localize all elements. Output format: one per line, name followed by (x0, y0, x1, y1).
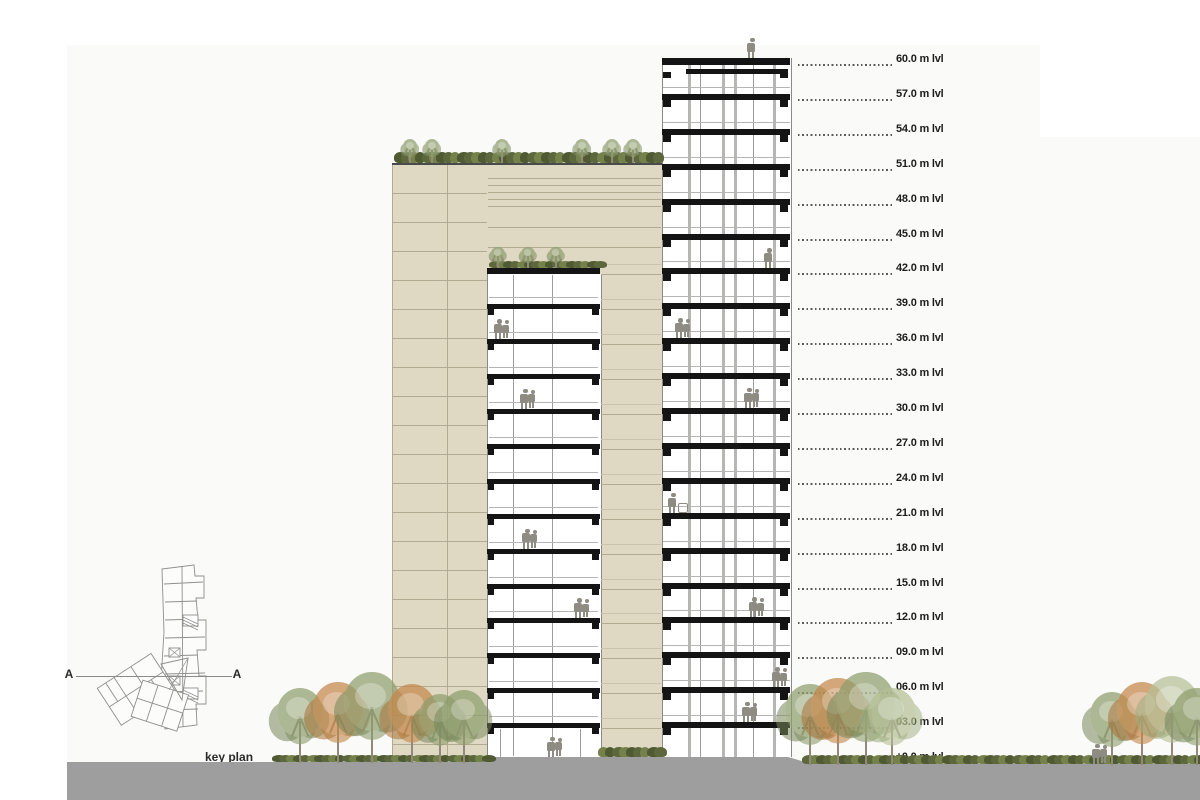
person-head (505, 320, 509, 324)
level-leader-line (798, 64, 892, 66)
tower-floor-slab (662, 583, 790, 589)
level-label: 54.0 m lvl (896, 123, 976, 135)
tower-slab-stub (780, 449, 788, 456)
podium-panel-joint-vertical (447, 165, 448, 757)
level-leader-line (798, 622, 892, 624)
person-head (533, 530, 537, 534)
atrium-slab-stub (592, 658, 599, 664)
tower-slab-stub (663, 135, 671, 142)
atrium-transom (489, 402, 598, 403)
atrium-slab-stub (592, 519, 599, 525)
tower-slab-stub (663, 72, 671, 78)
person-head (550, 737, 554, 741)
atrium-slab-stub (592, 693, 599, 699)
section-drawing-sheet: A A key plan 60.0 m lvl57.0 m lvl54.0 m … (0, 0, 1200, 800)
tower-slab-stub (780, 379, 788, 386)
tower-transom (663, 576, 790, 577)
person-leg (1097, 757, 1099, 764)
atrium-floor-slab (487, 304, 600, 309)
tower-slab-stub (780, 623, 788, 630)
podium-band-line (488, 199, 661, 200)
podium-band-line (488, 178, 661, 179)
person-leg (525, 402, 527, 409)
tower-slab-stub (663, 309, 671, 316)
atrium-slab-stub (488, 414, 494, 420)
roof-tree-canopy-highlight (608, 142, 616, 149)
person-leg (777, 680, 779, 687)
level-label: 15.0 m lvl (896, 577, 976, 589)
podium-right-wall-joint-minor (601, 369, 661, 370)
atrium-transom (489, 716, 598, 717)
level-leader-line (798, 239, 892, 241)
level-label: 33.0 m lvl (896, 367, 976, 379)
person-leg (506, 332, 508, 338)
atrium-slab-stub (592, 449, 599, 455)
atrium-roof-tree-canopy-highlight (552, 249, 559, 255)
person-head (1095, 744, 1099, 748)
podium-right-wall-joint (601, 658, 661, 659)
person-leg (1104, 757, 1106, 763)
podium-right-wall-joint (601, 414, 661, 415)
person-leg (548, 750, 550, 757)
person-head (671, 493, 675, 497)
person-leg (495, 332, 497, 339)
street-tree-canopy-highlight (878, 697, 904, 720)
atrium-slab-stub (592, 554, 599, 560)
level-label: 57.0 m lvl (896, 88, 976, 100)
level-leader-line (798, 448, 892, 450)
podium-right-wall-joint-minor (601, 683, 661, 684)
tower-floor-slab (662, 234, 790, 240)
tower-slab-stub (780, 309, 788, 316)
atrium-floor-slab (487, 688, 600, 693)
person-leg (745, 401, 747, 408)
level-leader-line (798, 413, 892, 415)
podium-right-wall-joint (601, 274, 661, 275)
tower-slab-stub (780, 589, 788, 596)
atrium-slab-stub (488, 309, 494, 315)
atrium-slab-stub (488, 344, 494, 350)
tower-floor-slab (662, 652, 790, 658)
atrium-floor-slab (487, 374, 600, 379)
podium-right-wall-joint-minor (601, 439, 661, 440)
person-leg (586, 611, 588, 617)
atrium-roof-tree-canopy-highlight (524, 249, 531, 255)
atrium-slab-stub (592, 309, 599, 315)
atrium-slab-stub (592, 484, 599, 490)
atrium-slab-stub (488, 554, 494, 560)
tower-slab-stub (780, 658, 788, 665)
person-leg (750, 610, 752, 617)
atrium-floor-slab (487, 409, 600, 414)
tower-slab-stub (780, 728, 788, 735)
person-leg (583, 611, 585, 617)
podium-right-wall-joint-minor (601, 718, 661, 719)
person-leg (579, 611, 581, 618)
podium-right-wall-joint-minor (601, 648, 661, 649)
person-leg (761, 610, 763, 616)
tower-floor-slab (662, 303, 790, 309)
tower-transom (663, 87, 790, 88)
tower-slab-stub (663, 623, 671, 630)
tower-transom (663, 471, 790, 472)
podium-right-wall-joint-minor (601, 579, 661, 580)
atrium-floor-slab (487, 584, 600, 589)
person-leg (684, 331, 686, 337)
person-leg (765, 261, 767, 268)
tower-roof-beam (686, 69, 788, 74)
tower-slab-stub (780, 240, 788, 247)
podium-band-line (488, 192, 661, 193)
level-leader-line (798, 483, 892, 485)
person-leg (773, 680, 775, 687)
person-head (775, 667, 779, 671)
person-leg (499, 332, 501, 339)
podium-right-wall-joint (601, 309, 661, 310)
tower-slab-stub (663, 519, 671, 526)
podium-right-wall-joint (601, 344, 661, 345)
tower-floor-slab (662, 268, 790, 274)
person-leg (523, 541, 525, 548)
atrium-slab-stub (592, 589, 599, 595)
person-leg (747, 715, 749, 722)
level-leader-line (798, 553, 892, 555)
podium-right-wall-joint (601, 623, 661, 624)
podium-right-wall-joint (601, 589, 661, 590)
tower-slab-stub (780, 414, 788, 421)
tower-transom (663, 610, 790, 611)
atrium-transom (489, 577, 598, 578)
person-leg (521, 402, 523, 409)
person-head (767, 248, 771, 252)
tower-slab-stub (663, 693, 671, 700)
shrub-ground (654, 747, 667, 757)
level-leader-line (798, 343, 892, 345)
roof-tree-canopy-highlight (578, 142, 586, 149)
tower-transom (663, 541, 790, 542)
person-leg (749, 401, 751, 408)
tower-slab-stub (663, 449, 671, 456)
tower-floor-slab (662, 164, 790, 170)
roof-tree-canopy-highlight (498, 142, 506, 149)
tower-slab-stub (663, 589, 671, 596)
person-leg (754, 610, 756, 617)
level-label: 27.0 m lvl (896, 437, 976, 449)
atrium-entrance-mullion (580, 729, 581, 757)
tower-slab-stub (663, 205, 671, 212)
podium-band-line (488, 185, 661, 186)
tower-slab-stub (780, 135, 788, 142)
tower-slab-stub (663, 484, 671, 491)
tower-slab-stub (780, 205, 788, 212)
podium-band-line (488, 206, 661, 207)
atrium-slab-stub (488, 658, 494, 664)
atrium-entrance-mullion (500, 729, 501, 757)
tower-slab-stub (663, 554, 671, 561)
atrium-transom (489, 646, 598, 647)
tower-floor-slab (662, 199, 790, 205)
person-leg (529, 402, 531, 408)
tower-slab-stub (780, 554, 788, 561)
person-head (497, 319, 501, 323)
scene-layer: 60.0 m lvl57.0 m lvl54.0 m lvl51.0 m lvl… (0, 0, 1200, 800)
podium-right-wall-joint-minor (601, 474, 661, 475)
roof-tree-canopy-highlight (629, 142, 637, 149)
tower-slab-stub (663, 379, 671, 386)
roof-tree-canopy-highlight (428, 142, 436, 149)
street-tree-canopy-highlight (355, 683, 386, 710)
level-leader-line (798, 134, 892, 136)
person-leg (769, 261, 771, 268)
level-label: 60.0 m lvl (896, 53, 976, 65)
level-label: 30.0 m lvl (896, 402, 976, 414)
atrium-floor-slab (487, 653, 600, 658)
person-leg (680, 331, 682, 338)
person-head (760, 598, 764, 602)
person-leg (758, 610, 760, 616)
tower-floor-slab (662, 373, 790, 379)
level-label: 45.0 m lvl (896, 228, 976, 240)
tower-transom (663, 366, 790, 367)
tower-transom (663, 296, 790, 297)
person-cart (678, 503, 688, 513)
atrium-floor-slab (487, 549, 600, 554)
level-label: 36.0 m lvl (896, 332, 976, 344)
atrium-transom (489, 297, 598, 298)
tower-transom (663, 227, 790, 228)
atrium-floor-slab (487, 514, 600, 519)
street-tree-canopy-highlight (1183, 697, 1200, 720)
podium-right-wall-joint (601, 379, 661, 380)
atrium-floor-slab (487, 444, 600, 449)
podium-right-wall-joint (601, 484, 661, 485)
street-tree-canopy-highlight (286, 697, 311, 719)
shrub-ground (482, 755, 496, 762)
tower-slab-stub (780, 72, 788, 78)
tower-slab-stub (663, 728, 671, 735)
level-leader-line (798, 378, 892, 380)
roof-tree-canopy-highlight (406, 142, 414, 149)
person-leg (534, 541, 536, 547)
tower-floor-slab (662, 443, 790, 449)
tower-floor-slab (662, 513, 790, 519)
person-leg (754, 715, 756, 721)
level-label: 42.0 m lvl (896, 262, 976, 274)
podium-right-wall-joint (601, 693, 661, 694)
podium-band-line (488, 227, 661, 228)
tower-slab-stub (663, 170, 671, 177)
atrium-transom (489, 437, 598, 438)
person-leg (1101, 757, 1103, 763)
atrium-floor-slab (487, 618, 600, 623)
person-leg (784, 680, 786, 686)
podium-right-wall-joint-minor (601, 404, 661, 405)
level-label: 24.0 m lvl (896, 472, 976, 484)
tower-slab-stub (780, 484, 788, 491)
level-leader-line (798, 588, 892, 590)
tower-slab-stub (663, 658, 671, 665)
tower-slab-stub (663, 414, 671, 421)
shrub-atrium-roof (594, 261, 607, 268)
person-head (783, 668, 787, 672)
podium-band-line (488, 247, 661, 248)
person-leg (687, 331, 689, 337)
podium-right-wall-joint-minor (601, 509, 661, 510)
level-label: 09.0 m lvl (896, 646, 976, 658)
person-leg (669, 506, 671, 513)
atrium-transom (489, 681, 598, 682)
tower-slab-stub (780, 519, 788, 526)
level-label: 51.0 m lvl (896, 158, 976, 170)
podium-right-wall-joint (601, 554, 661, 555)
atrium-slab-stub (488, 589, 494, 595)
person-head (745, 702, 749, 706)
tower-floor-slab (662, 408, 790, 414)
person-roof-head (750, 38, 754, 42)
person-head (523, 389, 527, 393)
person-head (678, 318, 682, 322)
person-leg (676, 331, 678, 338)
tower-transom (663, 715, 790, 716)
podium-right-wall-joint-minor (601, 544, 661, 545)
tower-slab-stub (780, 100, 788, 107)
atrium-slab-stub (488, 484, 494, 490)
atrium-slab-stub (592, 379, 599, 385)
podium-right-wall-joint-minor (601, 264, 661, 265)
tower-slab-stub (780, 170, 788, 177)
person-leg (503, 332, 505, 338)
level-label: 21.0 m lvl (896, 507, 976, 519)
tower-floor-slab (662, 548, 790, 554)
level-label: 48.0 m lvl (896, 193, 976, 205)
atrium-transom (489, 507, 598, 508)
atrium-transom (489, 367, 598, 368)
atrium-slab-stub (488, 449, 494, 455)
tower-roof-slab (662, 58, 790, 65)
atrium-slab-stub (488, 728, 494, 734)
podium-right-wall-joint-minor (601, 613, 661, 614)
podium-right-wall-joint (601, 449, 661, 450)
person-leg (527, 541, 529, 548)
person-head (585, 599, 589, 603)
tower-floor-slab (662, 617, 790, 623)
atrium-slab-stub (488, 519, 494, 525)
level-label: 39.0 m lvl (896, 297, 976, 309)
person-leg (556, 750, 558, 756)
person-leg (1093, 757, 1095, 764)
person-roof-leg (748, 51, 750, 58)
tower-transom (663, 436, 790, 437)
tower-slab-stub (780, 274, 788, 281)
person-leg (531, 541, 533, 547)
level-label: 12.0 m lvl (896, 611, 976, 623)
level-leader-line (798, 99, 892, 101)
tower-slab-stub (663, 100, 671, 107)
person-head (752, 597, 756, 601)
person-roof-leg (752, 51, 754, 58)
level-leader-line (798, 273, 892, 275)
atrium-roof-slab (487, 268, 600, 274)
tower-floor-slab (662, 94, 790, 100)
atrium-slab-stub (488, 623, 494, 629)
person-leg (743, 715, 745, 722)
level-label: 18.0 m lvl (896, 542, 976, 554)
tower-transom (663, 401, 790, 402)
atrium-floor-slab (487, 479, 600, 484)
person-leg (753, 401, 755, 407)
atrium-roof-tree-canopy-highlight (494, 249, 501, 255)
tower-transom (663, 680, 790, 681)
level-label: 06.0 m lvl (896, 681, 976, 693)
atrium-slab-stub (592, 728, 599, 734)
atrium-floor-slab (487, 339, 600, 344)
person-leg (781, 680, 783, 686)
level-leader-line (798, 169, 892, 171)
atrium-transom (489, 542, 598, 543)
person-leg (673, 506, 675, 513)
podium-right-wall-joint-minor (601, 299, 661, 300)
level-leader-line (798, 204, 892, 206)
street-tree-canopy-highlight (451, 699, 476, 720)
atrium-slab-stub (488, 379, 494, 385)
person-leg (575, 611, 577, 618)
tower-transom (663, 157, 790, 158)
tower-floor-slab (662, 687, 790, 693)
tower-transom (663, 192, 790, 193)
person-leg (559, 750, 561, 756)
atrium-transom (489, 472, 598, 473)
person-head (577, 598, 581, 602)
tower-slab-stub (663, 240, 671, 247)
podium-right-wall-joint (601, 519, 661, 520)
tower-transom (663, 122, 790, 123)
tower-slab-stub (780, 344, 788, 351)
tower-slab-stub (663, 274, 671, 281)
level-leader-line (798, 518, 892, 520)
atrium-floor-slab (487, 723, 600, 728)
person-head (525, 529, 529, 533)
podium-right-wall-joint-minor (601, 334, 661, 335)
tower-transom (663, 645, 790, 646)
atrium-slab-stub (488, 693, 494, 699)
atrium-slab-stub (592, 623, 599, 629)
tower-floor-slab (662, 129, 790, 135)
person-leg (532, 402, 534, 408)
person-leg (552, 750, 554, 757)
atrium-slab-stub (592, 344, 599, 350)
tower-slab-stub (663, 344, 671, 351)
level-leader-line (798, 657, 892, 659)
person-leg (751, 715, 753, 721)
person-head (747, 388, 751, 392)
person-leg (756, 401, 758, 407)
atrium-slab-stub (592, 414, 599, 420)
tower-floor-slab (662, 338, 790, 344)
tower-floor-slab (662, 722, 790, 728)
level-leader-line (798, 308, 892, 310)
podium-right-wall-joint (601, 728, 661, 729)
shrub-podium-roof (653, 152, 664, 163)
tower-floor-slab (662, 478, 790, 484)
